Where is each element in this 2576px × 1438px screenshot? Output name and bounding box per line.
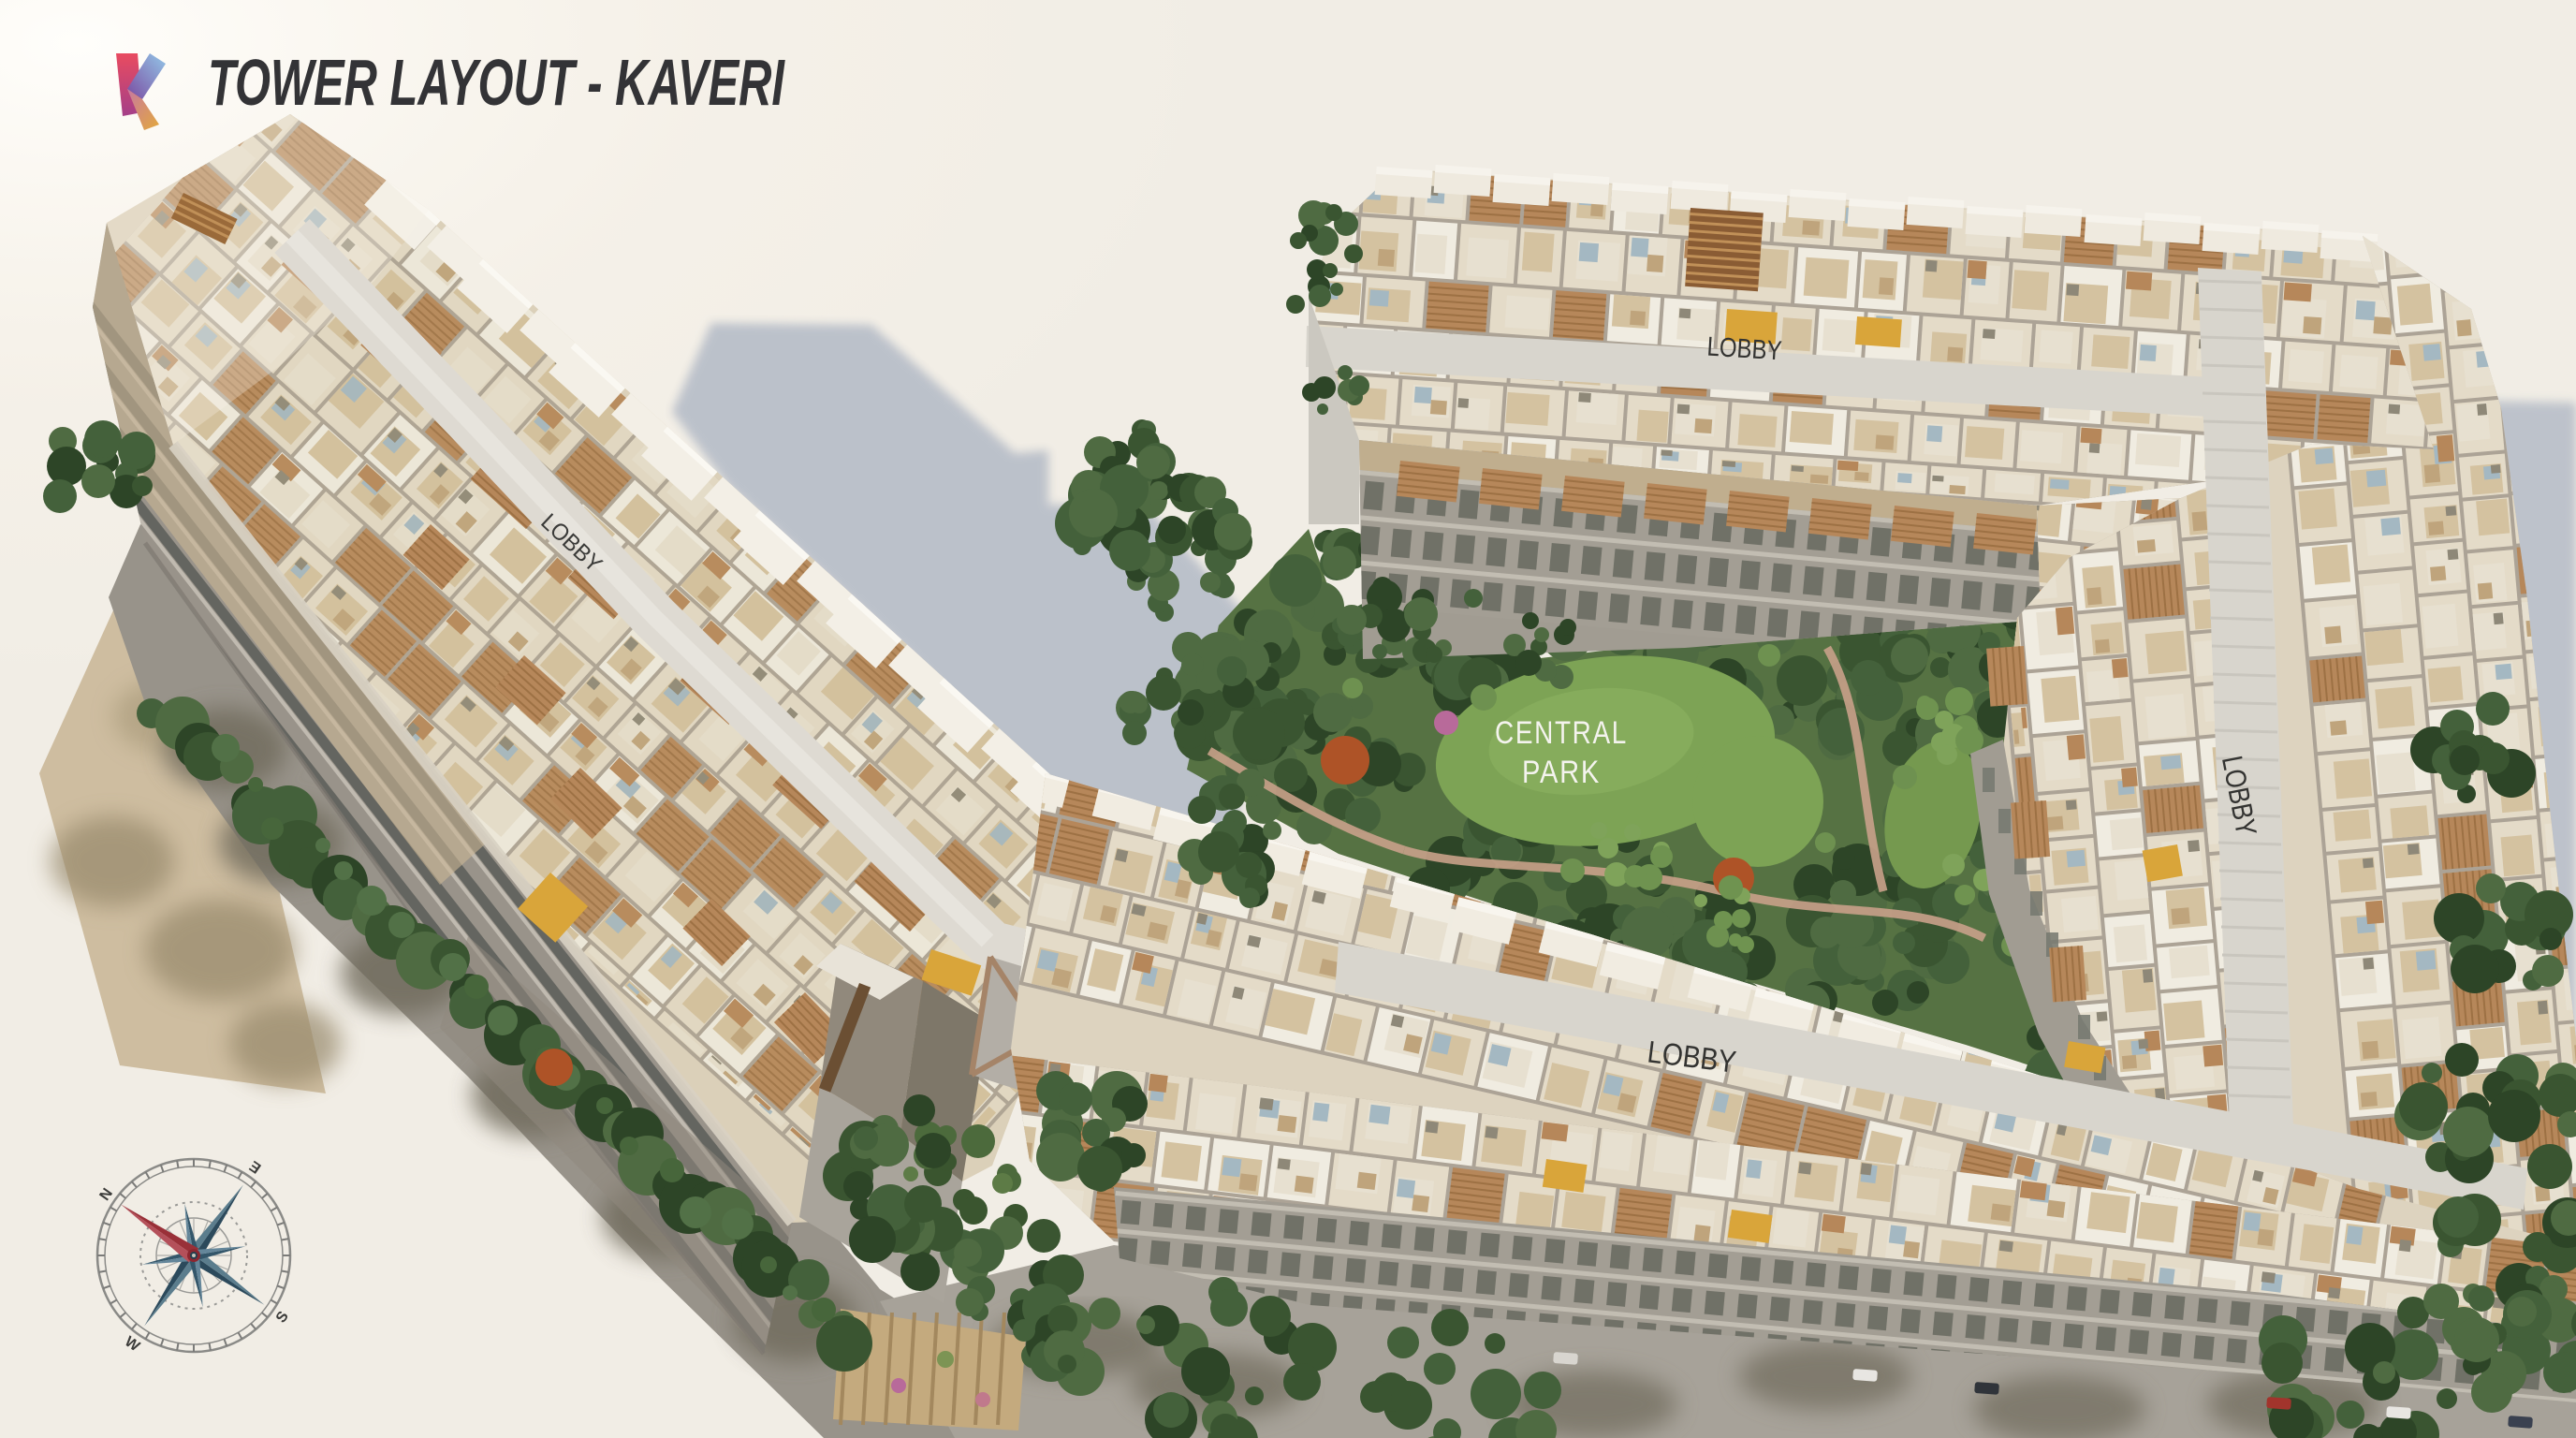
- svg-text:LOBBY: LOBBY: [1706, 332, 1783, 367]
- svg-text:TOWER LAYOUT - KAVERI: TOWER LAYOUT - KAVERI: [208, 46, 785, 119]
- svg-text:PARK: PARK: [1522, 755, 1601, 790]
- svg-text:CENTRAL: CENTRAL: [1495, 715, 1628, 751]
